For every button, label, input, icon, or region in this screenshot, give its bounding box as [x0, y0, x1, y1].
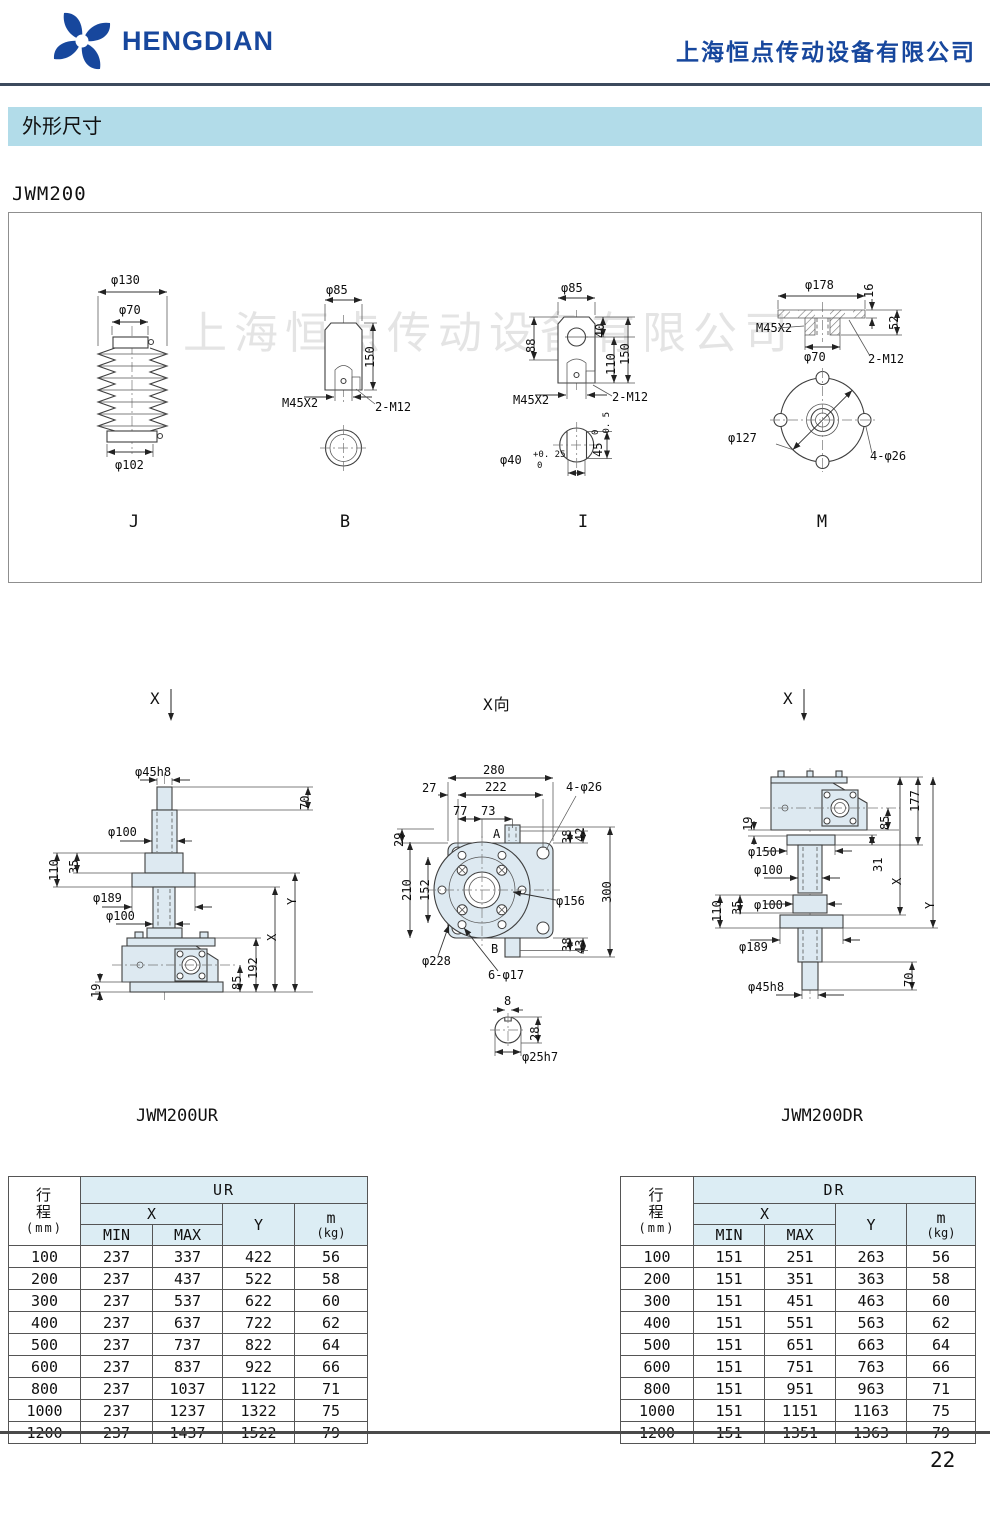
dr-stroke-header: 行程 (mm) [621, 1177, 694, 1246]
table-cell: 663 [836, 1334, 907, 1356]
svg-text:38: 38 [560, 938, 574, 952]
svg-text:X: X [265, 933, 279, 941]
svg-text:70: 70 [298, 796, 312, 810]
svg-text:0: 0 [537, 461, 542, 471]
table-cell: 151 [694, 1378, 765, 1400]
svg-text:152: 152 [418, 879, 432, 901]
dr-y-header: Y [836, 1204, 907, 1246]
svg-text:2-M12: 2-M12 [612, 390, 648, 404]
table-cell: 1151 [765, 1400, 836, 1422]
svg-text:8: 8 [504, 994, 511, 1008]
table-row: 50023773782264 [9, 1334, 368, 1356]
page-number: 22 [930, 1448, 955, 1472]
table-row: 10001511151116375 [621, 1400, 976, 1422]
label-j: J [112, 512, 156, 532]
table-cell: 75 [907, 1400, 976, 1422]
svg-text:φ100: φ100 [754, 898, 783, 912]
j-body [98, 337, 167, 442]
svg-text:Y: Y [285, 897, 299, 905]
drawing-jwm200ur: φ45h8 φ100 110 35 φ189 φ100 [40, 688, 325, 1013]
table-row: 60015175176366 [621, 1356, 976, 1378]
svg-text:φ45h8: φ45h8 [135, 765, 171, 779]
table-row: 40015155156362 [621, 1312, 976, 1334]
table-cell: 151 [694, 1312, 765, 1334]
svg-text:150: 150 [618, 343, 632, 365]
ur-m-header: m (kg) [295, 1204, 368, 1246]
svg-text:φ40: φ40 [500, 453, 522, 467]
drawing-i: φ85 88 40 110 150 [495, 268, 695, 485]
table-cell: 300 [9, 1290, 81, 1312]
section-title-banner: 外形尺寸 [8, 107, 982, 146]
svg-text:φ228: φ228 [422, 954, 451, 968]
table-cell: 451 [765, 1290, 836, 1312]
label-m: M [800, 512, 844, 532]
svg-text:4-φ26: 4-φ26 [566, 780, 602, 794]
table-cell: 263 [836, 1246, 907, 1268]
table-cell: 66 [907, 1356, 976, 1378]
logo-text: HENGDIAN [122, 26, 274, 57]
svg-text:-0. 5: -0. 5 [602, 412, 612, 439]
svg-text:280: 280 [483, 763, 505, 777]
dr-max-header: MAX [765, 1225, 836, 1246]
table-cell: 800 [9, 1378, 81, 1400]
table-cell: 600 [621, 1356, 694, 1378]
table-cell: 400 [9, 1312, 81, 1334]
table-row: 30023753762260 [9, 1290, 368, 1312]
table-cell: 66 [295, 1356, 368, 1378]
table-cell: 62 [907, 1312, 976, 1334]
svg-text:29: 29 [392, 833, 406, 847]
label-b: B [323, 512, 367, 532]
b-bottom-view [320, 425, 367, 471]
i-bottom-view: φ40 +0. 25 0 45 0 -0. 5 [500, 412, 612, 476]
table-cell: 237 [81, 1400, 153, 1422]
svg-text:35: 35 [67, 860, 81, 874]
table-cell: 1000 [621, 1400, 694, 1422]
svg-text:150: 150 [363, 346, 377, 368]
j-dimensions: φ130 φ70 [98, 273, 167, 346]
svg-text:110: 110 [47, 859, 61, 881]
drawing-jwm200dr: 19 177 85 φ150 31 φ100 X Y φ100 [690, 688, 980, 1008]
svg-text:φ130: φ130 [111, 273, 140, 287]
table-cell: 500 [621, 1334, 694, 1356]
label-jwm200dr: JWM200DR [757, 1106, 887, 1126]
table-cell: 800 [621, 1378, 694, 1400]
svg-text:70: 70 [902, 973, 916, 987]
table-cell: 56 [907, 1246, 976, 1268]
m-bottom-view: φ127 4-φ26 [728, 368, 906, 472]
table-cell: 200 [9, 1268, 81, 1290]
svg-text:φ102: φ102 [115, 458, 144, 472]
table-cell: 237 [81, 1268, 153, 1290]
svg-text:M45X2: M45X2 [282, 396, 318, 410]
svg-text:77: 77 [453, 804, 467, 818]
table-cell: 237 [81, 1290, 153, 1312]
drawing-m-flange: φ178 16 52 M45X2 [720, 268, 950, 483]
table-cell: 100 [9, 1246, 81, 1268]
svg-text:X: X [890, 877, 904, 885]
table-row: 20023743752258 [9, 1268, 368, 1290]
svg-text:2-M12: 2-M12 [375, 400, 411, 414]
svg-text:192: 192 [246, 957, 260, 979]
svg-text:Y: Y [923, 901, 937, 909]
table-row: 10002371237132275 [9, 1400, 368, 1422]
svg-text:M45X2: M45X2 [756, 321, 792, 335]
table-cell: 1037 [153, 1378, 223, 1400]
i-thread-dim: M45X2 2-M12 [513, 383, 648, 407]
i-dimensions-top: φ85 [558, 281, 595, 315]
ur-housing [112, 932, 235, 992]
svg-text:φ85: φ85 [326, 283, 348, 297]
logo-pinwheel-icon [52, 10, 112, 72]
svg-text:φ100: φ100 [754, 863, 783, 877]
table-row: 10015125126356 [621, 1246, 976, 1268]
table-cell: 75 [295, 1400, 368, 1422]
svg-text:0: 0 [591, 430, 601, 435]
dr-table-body: 1001512512635620015135136358300151451463… [621, 1246, 976, 1444]
svg-text:16: 16 [862, 284, 876, 298]
table-cell: 151 [694, 1334, 765, 1356]
svg-text:φ127: φ127 [728, 431, 757, 445]
model-label: JWM200 [12, 183, 87, 205]
table-row: 30015145146360 [621, 1290, 976, 1312]
ur-stroke-header: 行程 (mm) [9, 1177, 81, 1246]
svg-text:+0. 25: +0. 25 [533, 450, 566, 460]
svg-text:φ189: φ189 [739, 940, 768, 954]
table-cell: 500 [9, 1334, 81, 1356]
table-cell: 463 [836, 1290, 907, 1312]
table-cell: 58 [295, 1268, 368, 1290]
table-cell: 737 [153, 1334, 223, 1356]
table-cell: 337 [153, 1246, 223, 1268]
svg-text:40: 40 [593, 324, 607, 338]
table-cell: 551 [765, 1312, 836, 1334]
svg-text:177: 177 [908, 790, 922, 812]
svg-text:2-M12: 2-M12 [868, 352, 904, 366]
dr-screw [780, 835, 843, 990]
svg-text:88: 88 [524, 339, 538, 353]
xv-shaft-detail: 8 28 φ25h7 [490, 994, 558, 1064]
svg-text:85: 85 [878, 816, 892, 830]
table-row: 10023733742256 [9, 1246, 368, 1268]
table-cell: 200 [621, 1268, 694, 1290]
logo: HENGDIAN [52, 10, 274, 72]
table-cell: 722 [223, 1312, 295, 1334]
svg-text:φ85: φ85 [561, 281, 583, 295]
ur-min-header: MIN [81, 1225, 153, 1246]
drawing-x-view: 280 222 27 77 73 4-φ26 29 A B 210 [380, 688, 625, 1083]
b-thread-dim: M45X2 2-M12 [282, 389, 411, 414]
svg-text:φ156: φ156 [556, 894, 585, 908]
svg-text:A: A [493, 827, 501, 841]
header-divider [0, 83, 990, 86]
svg-text:42: 42 [573, 828, 587, 842]
table-cell: 151 [694, 1356, 765, 1378]
ur-table-body: 1002373374225620023743752258300237537622… [9, 1246, 368, 1444]
table-cell: 71 [907, 1378, 976, 1400]
svg-text:300: 300 [600, 881, 614, 903]
ur-spec-table: 行程 (mm) UR X Y m (kg) MIN MAX 1002373374… [8, 1176, 368, 1444]
table-row: 50015165166364 [621, 1334, 976, 1356]
table-cell: 822 [223, 1334, 295, 1356]
table-cell: 437 [153, 1268, 223, 1290]
label-jwm200ur: JWM200UR [112, 1106, 242, 1126]
table-cell: 651 [765, 1334, 836, 1356]
table-cell: 763 [836, 1356, 907, 1378]
svg-text:43: 43 [573, 940, 587, 954]
table-cell: 600 [9, 1356, 81, 1378]
table-cell: 100 [621, 1246, 694, 1268]
table-cell: 963 [836, 1378, 907, 1400]
drawing-j-bellows: φ130 φ70 φ102 [75, 268, 315, 478]
svg-text:4-φ26: 4-φ26 [870, 449, 906, 463]
table-cell: 1322 [223, 1400, 295, 1422]
drawing-b: φ85 150 M45X2 2-M12 [280, 270, 455, 475]
dr-min-header: MIN [694, 1225, 765, 1246]
table-row: 8002371037112271 [9, 1378, 368, 1400]
svg-text:6-φ17: 6-φ17 [488, 968, 524, 982]
svg-text:19: 19 [89, 984, 103, 998]
svg-text:73: 73 [481, 804, 495, 818]
table-cell: 71 [295, 1378, 368, 1400]
table-cell: 363 [836, 1268, 907, 1290]
svg-text:28: 28 [528, 1027, 542, 1041]
table-cell: 58 [907, 1268, 976, 1290]
table-cell: 237 [81, 1356, 153, 1378]
dr-m-header: m (kg) [907, 1204, 976, 1246]
dr-x-header: X [694, 1204, 836, 1225]
table-cell: 1122 [223, 1378, 295, 1400]
table-cell: 1000 [9, 1400, 81, 1422]
ur-x-header: X [81, 1204, 223, 1225]
dr-spec-table: 行程 (mm) DR X Y m (kg) MIN MAX 1001512512… [620, 1176, 976, 1444]
svg-text:φ70: φ70 [804, 350, 826, 364]
table-cell: 351 [765, 1268, 836, 1290]
ur-y-header: Y [223, 1204, 295, 1246]
table-cell: 400 [621, 1312, 694, 1334]
j-bottom-dim: φ102 [107, 444, 153, 472]
table-cell: 151 [694, 1290, 765, 1312]
svg-text:210: 210 [400, 879, 414, 901]
table-cell: 237 [81, 1312, 153, 1334]
table-cell: 151 [694, 1268, 765, 1290]
svg-text:110: 110 [710, 900, 724, 922]
table-cell: 60 [907, 1290, 976, 1312]
table-cell: 922 [223, 1356, 295, 1378]
table-cell: 637 [153, 1312, 223, 1334]
table-cell: 837 [153, 1356, 223, 1378]
svg-text:φ100: φ100 [106, 909, 135, 923]
table-cell: 522 [223, 1268, 295, 1290]
svg-text:19: 19 [741, 817, 755, 831]
dr-group-header: DR [694, 1177, 976, 1204]
table-cell: 537 [153, 1290, 223, 1312]
table-cell: 300 [621, 1290, 694, 1312]
svg-text:φ150: φ150 [748, 845, 777, 859]
table-row: 80015195196371 [621, 1378, 976, 1400]
table-cell: 951 [765, 1378, 836, 1400]
table-cell: 563 [836, 1312, 907, 1334]
table-cell: 622 [223, 1290, 295, 1312]
table-cell: 251 [765, 1246, 836, 1268]
table-row: 40023763772262 [9, 1312, 368, 1334]
table-cell: 751 [765, 1356, 836, 1378]
svg-text:85: 85 [230, 976, 244, 990]
table-cell: 151 [694, 1400, 765, 1422]
svg-text:222: 222 [485, 780, 507, 794]
svg-text:φ25h7: φ25h7 [522, 1050, 558, 1064]
svg-text:52: 52 [887, 316, 901, 330]
svg-text:φ45h8: φ45h8 [748, 980, 784, 994]
svg-text:38: 38 [560, 830, 574, 844]
svg-text:110: 110 [604, 353, 618, 375]
footer-divider [0, 1431, 990, 1434]
catalog-page: HENGDIAN 上海恒点传动设备有限公司 外形尺寸 JWM200 上海恒点传动… [0, 0, 990, 1513]
b-body [325, 323, 362, 390]
svg-text:35: 35 [730, 901, 744, 915]
table-cell: 56 [295, 1246, 368, 1268]
table-cell: 60 [295, 1290, 368, 1312]
table-cell: 237 [81, 1334, 153, 1356]
table-row: 60023783792266 [9, 1356, 368, 1378]
i-body [558, 317, 595, 383]
svg-text:φ100: φ100 [108, 825, 137, 839]
svg-text:27: 27 [422, 781, 436, 795]
table-cell: 237 [81, 1246, 153, 1268]
table-cell: 1237 [153, 1400, 223, 1422]
svg-text:φ178: φ178 [805, 278, 834, 292]
table-cell: 151 [694, 1246, 765, 1268]
svg-text:31: 31 [871, 858, 885, 872]
section-title: 外形尺寸 [22, 114, 102, 138]
table-cell: 422 [223, 1246, 295, 1268]
svg-text:φ70: φ70 [119, 303, 141, 317]
table-cell: 237 [81, 1378, 153, 1400]
table-cell: 62 [295, 1312, 368, 1334]
ur-max-header: MAX [153, 1225, 223, 1246]
table-cell: 1163 [836, 1400, 907, 1422]
company-name: 上海恒点传动设备有限公司 [676, 33, 976, 67]
ur-group-header: UR [81, 1177, 368, 1204]
svg-text:φ189: φ189 [93, 891, 122, 905]
svg-text:B: B [491, 942, 498, 956]
table-row: 20015135136358 [621, 1268, 976, 1290]
svg-text:45: 45 [591, 443, 605, 457]
table-cell: 64 [295, 1334, 368, 1356]
table-cell: 64 [907, 1334, 976, 1356]
label-i: I [561, 512, 605, 532]
